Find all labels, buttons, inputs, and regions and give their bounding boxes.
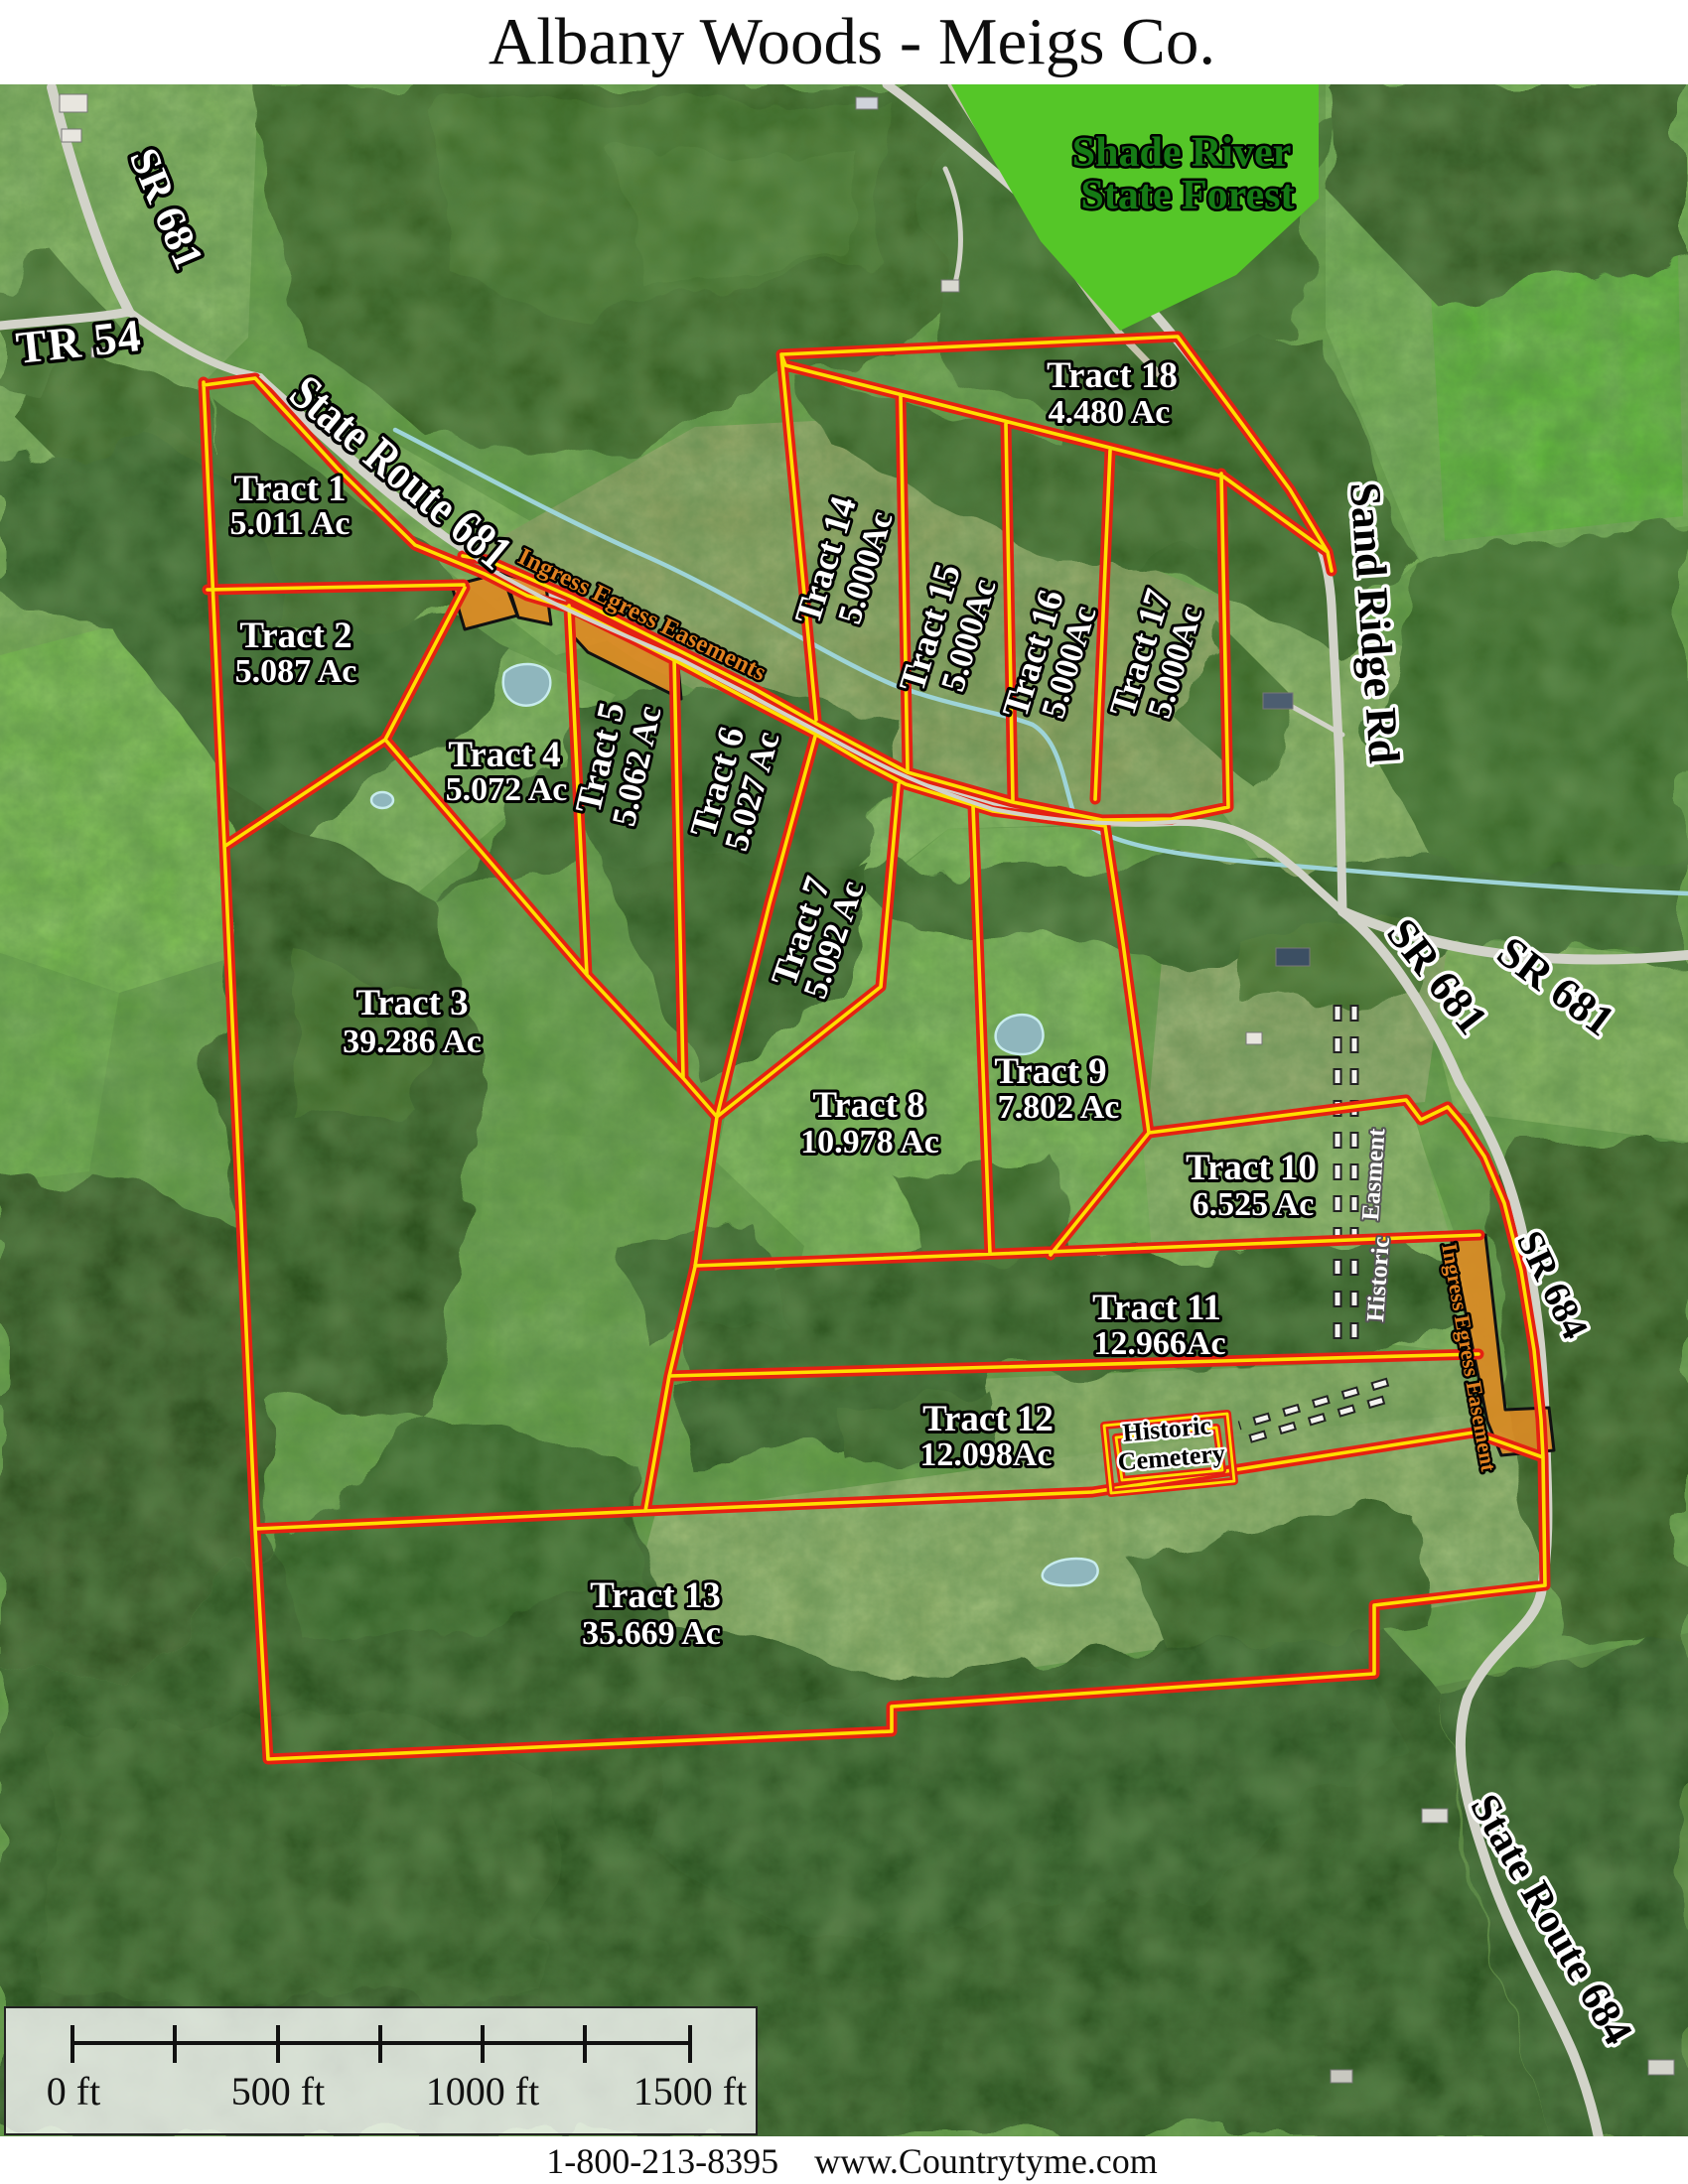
svg-text:1000 ft: 1000 ft xyxy=(426,2069,539,2114)
svg-text:Tract 2: Tract 2 xyxy=(239,615,352,656)
svg-text:5.011 Ac: 5.011 Ac xyxy=(230,505,351,542)
svg-text:5.087 Ac: 5.087 Ac xyxy=(235,653,357,690)
svg-text:Tract 1: Tract 1 xyxy=(233,469,346,509)
svg-text:Tract 12: Tract 12 xyxy=(922,1399,1054,1439)
svg-text:12.966Ac: 12.966Ac xyxy=(1093,1325,1225,1362)
svg-text:Shade River: Shade River xyxy=(1072,130,1292,176)
svg-text:Tract 4: Tract 4 xyxy=(448,735,560,775)
svg-text:Albany Woods - Meigs Co.: Albany Woods - Meigs Co. xyxy=(489,5,1215,78)
svg-text:Tract 3: Tract 3 xyxy=(355,983,468,1024)
svg-text:Tract 11: Tract 11 xyxy=(1092,1288,1221,1328)
svg-text:4.480 Ac: 4.480 Ac xyxy=(1049,394,1171,431)
svg-text:10.978 Ac: 10.978 Ac xyxy=(800,1124,939,1160)
svg-text:State Forest: State Forest xyxy=(1081,173,1295,218)
svg-text:500 ft: 500 ft xyxy=(231,2069,325,2114)
svg-text:Tract 9: Tract 9 xyxy=(994,1051,1106,1092)
svg-text:12.098Ac: 12.098Ac xyxy=(919,1436,1052,1473)
svg-text:7.802 Ac: 7.802 Ac xyxy=(998,1089,1120,1126)
svg-text:35.669 Ac: 35.669 Ac xyxy=(582,1615,721,1652)
svg-text:39.286 Ac: 39.286 Ac xyxy=(343,1024,482,1060)
svg-text:0 ft: 0 ft xyxy=(47,2069,100,2114)
svg-text:1-800-213-8395 www.Countryt: 1-800-213-8395 www.Countrytyme.com xyxy=(546,2141,1158,2181)
svg-text:5.072 Ac: 5.072 Ac xyxy=(446,771,568,808)
svg-text:6.525 Ac: 6.525 Ac xyxy=(1193,1186,1315,1223)
svg-text:Tract 8: Tract 8 xyxy=(812,1085,924,1126)
svg-text:HistoricCemetery: HistoricCemetery xyxy=(1114,1410,1226,1476)
svg-text:Tract 10: Tract 10 xyxy=(1186,1148,1317,1188)
svg-text:1500 ft: 1500 ft xyxy=(633,2069,747,2114)
svg-text:Tract 13: Tract 13 xyxy=(590,1575,721,1616)
svg-text:Tract 18: Tract 18 xyxy=(1047,355,1178,396)
